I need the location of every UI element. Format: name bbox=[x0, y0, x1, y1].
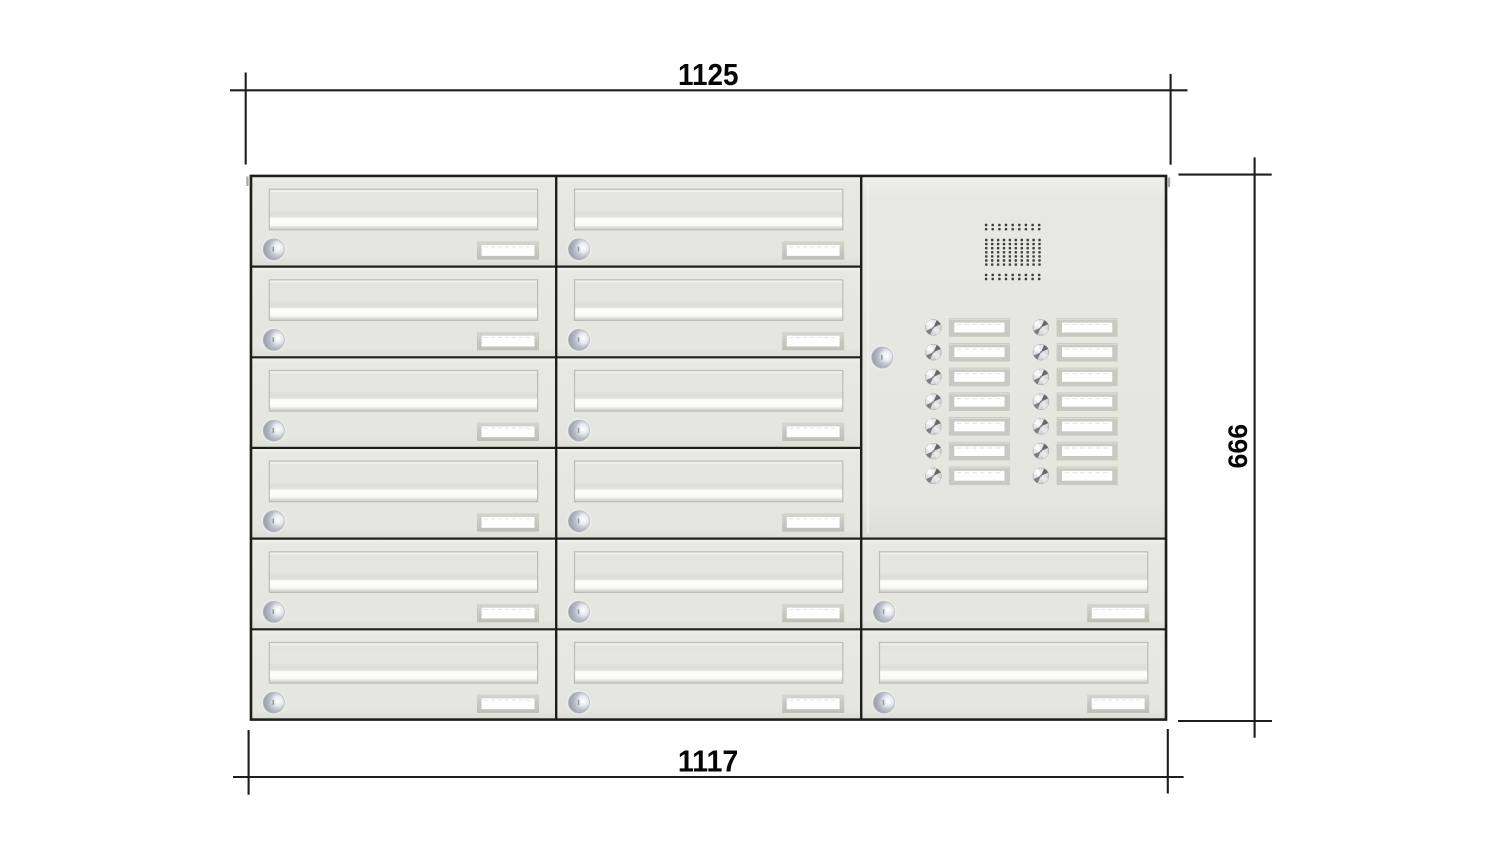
svg-text:1125: 1125 bbox=[678, 57, 739, 92]
svg-text:1117: 1117 bbox=[678, 744, 739, 779]
svg-text:666: 666 bbox=[1223, 424, 1253, 469]
